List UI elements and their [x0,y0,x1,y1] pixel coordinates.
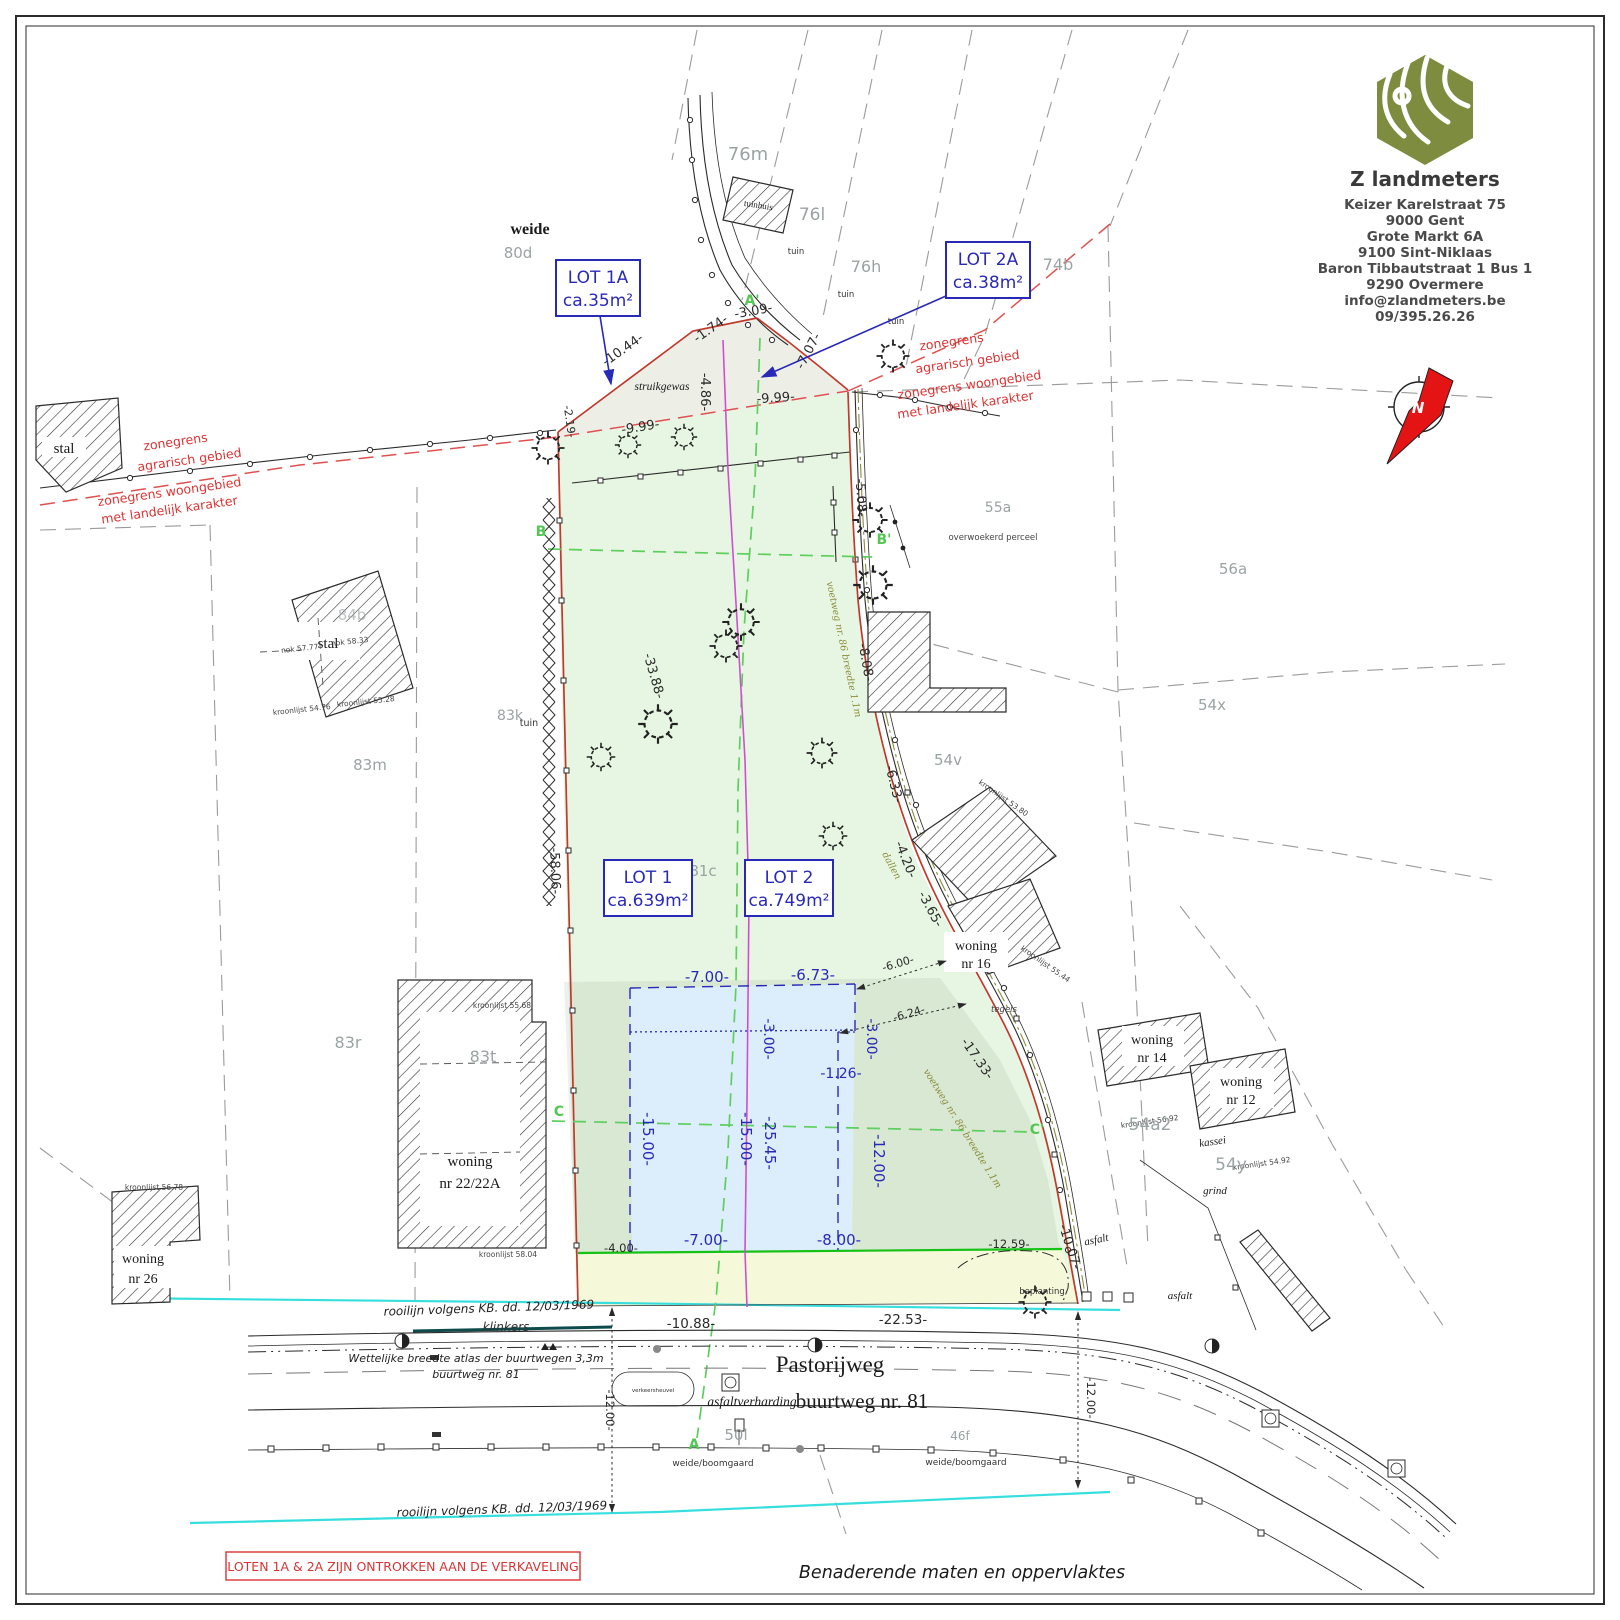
beplanting-label: beplanting [1019,1287,1064,1297]
dim-3-00-mid: -3.00- [760,1018,776,1059]
weide-label: weide [510,221,549,238]
dim-4-00: -4.00- [604,1241,638,1255]
building-woning-12: woning nr 12 kroonlijst 54.92 [1190,1049,1295,1172]
lot1-box: LOT 1 ca.639m² [604,860,692,916]
dim-4-86: -4.86- [697,373,712,412]
approx-note-text: Benaderende maten en oppervlaktes [799,1563,1125,1583]
parcel-label-80d: 80d [504,244,533,262]
parcel-label-81c: 81c [689,862,716,880]
section-label-c2: C' [1030,1122,1045,1138]
north-letter: N [1412,399,1425,417]
dim-5-08: -5.08- [852,478,870,518]
building-stal-mid: 84b stal nok 57.77 nok 58.33 kroonlijst … [260,571,413,717]
parcel-label-83r: 83r [335,1033,362,1052]
woning-nr-label: nr 12 [1226,1093,1255,1108]
building-woning-26: woning nr 26 kroonlijst 56.78 [112,1183,200,1304]
lot1a-name: LOT 1A [568,268,629,288]
address-line-1: Keizer Karelstraat 75 [1344,197,1506,213]
survey-plan-page: stal 84b stal nok 57.77 nok 58.33 kroonl… [0,0,1620,1620]
asfalt-label: asfalt [1168,1290,1193,1302]
address-line-3: Grote Markt 6A [1367,229,1484,245]
site-plan-drawing: stal 84b stal nok 57.77 nok 58.33 kroonl… [0,0,1620,1620]
kroonlijst-label: kroonlijst 56.78 [125,1183,183,1192]
kroonlijst-label: kroonlijst 54.76 [272,702,331,717]
parcel-label-76l: 76l [799,205,825,225]
klinkers-label: klinkers [483,1320,530,1334]
email: info@zlandmeters.be [1344,293,1505,309]
woning-nr-label: nr 22/22A [439,1176,500,1192]
section-label-c: C [554,1104,564,1120]
north-arrow: N [1387,368,1453,464]
notes: LOTEN 1A & 2A ZIJN ONTROKKEN AAN DE VERK… [226,1552,1125,1583]
dim-3-00-right: -3.00- [863,1018,879,1059]
parcel-label-50l: 50l [724,1426,747,1444]
woning-label: woning [448,1154,494,1170]
building-hatched-bar-road-bend [1240,1230,1330,1331]
lot2a-area: ca.38m² [953,273,1023,293]
tegels-label: tegels [991,1005,1018,1015]
parcel-label-54x: 54x [1198,696,1226,714]
lot1a-area: ca.35m² [563,291,633,311]
dim-15-00-a: -15.00- [639,1112,657,1166]
building-stal-west: stal [36,398,122,492]
address-line-6: 9290 Overmere [1366,277,1483,293]
building-tuinhuis: tuinhuis [723,177,793,233]
kroonlijst-label: kroonlijst 58.04 [479,1250,537,1259]
dim-22-53: -22.53- [879,1312,928,1328]
parcel-label-54v: 54v [934,751,962,769]
address-line-4: 9100 Sint-Niklaas [1358,245,1492,261]
woning-label: woning [122,1252,164,1267]
struikgewas-label: struikgewas [635,381,690,393]
parcel-label-74b: 74b [1043,255,1074,274]
lot2a-name: LOT 2A [958,250,1019,270]
woning-nr-label: nr 26 [128,1272,157,1287]
parcel-label-76h: 76h [851,257,882,276]
parcel-label-76m: 76m [728,144,768,165]
tuin-label: tuin [838,290,854,300]
dim-15-00-b: -15.00- [737,1112,755,1166]
building-woning-22-22a: 83t woning nr 22/22A kroonlijst 55.68 kr… [398,980,546,1259]
parcel-label-46f: 46f [950,1429,970,1443]
dim-7-00-top: -7.00- [685,968,729,986]
asfaltverharding-label: asfaltverharding [707,1394,797,1409]
section-label-b2: B' [877,532,892,548]
hedge-zigzag [538,498,556,906]
building-barn-54v [868,612,1006,712]
tuin-label: tuin [788,247,804,257]
company-name: Z landmeters [1350,167,1500,191]
title-block: Z landmeters Keizer Karelstraat 75 9000 … [1318,55,1533,325]
lot1a-box: LOT 1A ca.35m² [556,260,640,384]
lot1-name: LOT 1 [624,868,673,888]
weide-boomgaard-label: weide/boomgaard [925,1458,1006,1468]
phone: 09/395.26.26 [1375,309,1475,325]
parcel-label-54a2: 54a2 [1129,1115,1172,1135]
woning-label: woning [1131,1033,1173,1048]
front-strip-area [575,1250,1078,1306]
dim-6-73: -6.73- [791,966,835,984]
parcel-label-56a: 56a [1219,560,1247,578]
dim-9-99-b: -9.99- [756,390,796,408]
dim-8-00: -8.00- [817,1231,861,1249]
woning-nr-label: nr 14 [1137,1051,1166,1066]
lot2-area: ca.749m² [749,891,830,911]
exclusion-note-text: LOTEN 1A & 2A ZIJN ONTROKKEN AAN DE VERK… [227,1559,578,1574]
tuin-label: tuin [520,718,538,729]
weide-boomgaard-label: weide/boomgaard [672,1459,753,1469]
woning-label: woning [955,939,997,954]
grind-label: grind [1203,1185,1227,1197]
lot1-area: ca.639m² [608,891,689,911]
dim-1-26: -1.26- [820,1066,861,1082]
parcel-label-54y: 54y [1215,1155,1247,1175]
section-label-a: A [689,1437,700,1453]
address-line-2: 9000 Gent [1386,213,1465,229]
buurtweg-label: buurtweg nr. 81 [796,1389,928,1413]
dim-12-00-road-r: -12.00- [1084,1377,1098,1418]
section-label-b: B [536,524,547,540]
lot2-box: LOT 2 ca.749m² [745,860,833,916]
stal-label: stal [54,441,75,457]
kroonlijst-label: kroonlijst 55.68 [473,1001,531,1010]
dim-58-06: -58.06- [546,847,563,894]
dim-12-00-road-l: -12.00- [603,1389,617,1430]
dim-12-59: -12.59- [988,1237,1029,1251]
dim-25-45: -25.45- [761,1116,779,1170]
dim-12-00: -12.00- [870,1134,888,1188]
parcel-label-84b: 84b [338,606,367,624]
wettelijke-breedte-label2: buurtweg nr. 81 [432,1368,519,1381]
parcel-label-83m: 83m [353,756,387,774]
verkeersheuvel-label: verkeersheuvel [632,1388,675,1394]
pastorijweg-label: Pastorijweg [776,1352,885,1377]
asfalt-label: asfalt [1083,1231,1110,1248]
company-logo [1377,55,1473,165]
dim-7-00-bottom: -7.00- [684,1231,728,1249]
dim-3-09: -3.09- [733,301,774,322]
dim-10-88: -10.88- [667,1316,716,1332]
dim-10-44: -10.44- [600,330,647,369]
parcel-label-55a: 55a [985,500,1011,516]
zonegrens-agrarisch-label: zonegrens [918,330,984,354]
wettelijke-breedte-label: Wettelijke breedte atlas der buurtwegen … [348,1352,603,1365]
woning-label: woning [1220,1075,1262,1090]
overwoekerd-label: overwoekerd perceel [948,533,1037,543]
parcel-label-83t: 83t [470,1047,497,1066]
lot2-name: LOT 2 [765,868,814,888]
kassei-label: kassei [1198,1134,1226,1150]
address-line-5: Baron Tibbautstraat 1 Bus 1 [1318,261,1533,277]
woning-nr-label: nr 16 [961,957,990,972]
